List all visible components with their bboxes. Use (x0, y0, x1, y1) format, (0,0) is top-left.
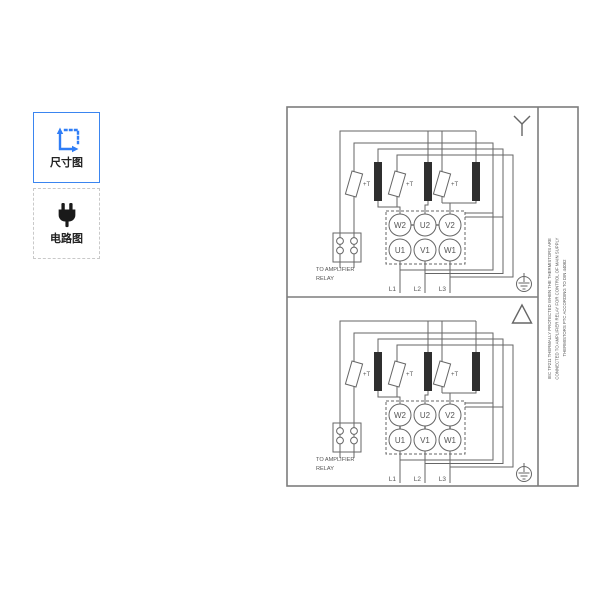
relay-note-line2: RELAY (316, 276, 334, 282)
terminal-label: U1 (395, 436, 406, 445)
lead-label: L3 (439, 286, 447, 293)
coil-symbol (374, 162, 480, 201)
terminal-label: W1 (444, 246, 457, 255)
thermistor-label: +T (363, 182, 371, 188)
relay-note-line1: TO AMPLIFIER (316, 457, 354, 463)
terminal-label: W1 (444, 436, 457, 445)
wires (340, 131, 513, 293)
star-wiring-diagram: +T +T +T TO AMPLIFIER RELAY (316, 116, 532, 293)
side-note-text: IEC TP211 THERMALLY PROTECTED WHEN THE T… (547, 236, 567, 379)
terminal-label: V1 (420, 436, 430, 445)
star-connection-icon (514, 116, 530, 136)
lead-label: L2 (414, 476, 422, 483)
thermistor-label: +T (363, 372, 371, 378)
thermistor-label: +T (406, 182, 414, 188)
relay-note-line2: RELAY (316, 466, 334, 472)
lead-label: L1 (389, 476, 397, 483)
earth-ground-icon (517, 463, 532, 482)
delta-wiring-diagram: +T +T +T TO AMPLIFIER RELAY (316, 305, 532, 483)
amplifier-relay-block (333, 233, 361, 262)
earth-ground-icon (517, 273, 532, 292)
wiring-diagram-canvas: +T +T +T TO AMPLIFIER RELAY (0, 0, 600, 600)
terminal-label: V2 (445, 221, 455, 230)
drawing-frame (287, 107, 578, 486)
amplifier-relay-block (333, 423, 361, 452)
wires (340, 321, 513, 483)
lead-label: L2 (414, 286, 422, 293)
product-diagram-page: 尺寸图 电路图 (0, 0, 600, 600)
terminal-label: U2 (420, 221, 431, 230)
terminal-label: W2 (394, 221, 407, 230)
terminal-label: U2 (420, 411, 431, 420)
side-note-line: THERMISTORS PTC ACCORDING TO DIN 44082 (562, 259, 567, 357)
thermistor-label: +T (451, 182, 459, 188)
terminal-label: U1 (395, 246, 406, 255)
coil-symbol (374, 352, 480, 391)
thermistor-symbol (345, 171, 450, 197)
thermistor-label: +T (451, 372, 459, 378)
thermistor-label: +T (406, 372, 414, 378)
terminal-label: V2 (445, 411, 455, 420)
side-note-line: IEC TP211 THERMALLY PROTECTED WHEN THE T… (547, 238, 552, 379)
side-note-line: CONNECTED TO AMPLIFIER RELAY FOR CONTROL… (554, 237, 559, 379)
delta-connection-icon (513, 305, 532, 323)
lead-label: L1 (389, 286, 397, 293)
lead-label: L3 (439, 476, 447, 483)
relay-note-line1: TO AMPLIFIER (316, 267, 354, 273)
thermistor-symbol (345, 361, 450, 387)
terminals: W2 U2 V2 U1 V1 W1 (389, 214, 461, 261)
terminal-label: V1 (420, 246, 430, 255)
terminal-label: W2 (394, 411, 407, 420)
